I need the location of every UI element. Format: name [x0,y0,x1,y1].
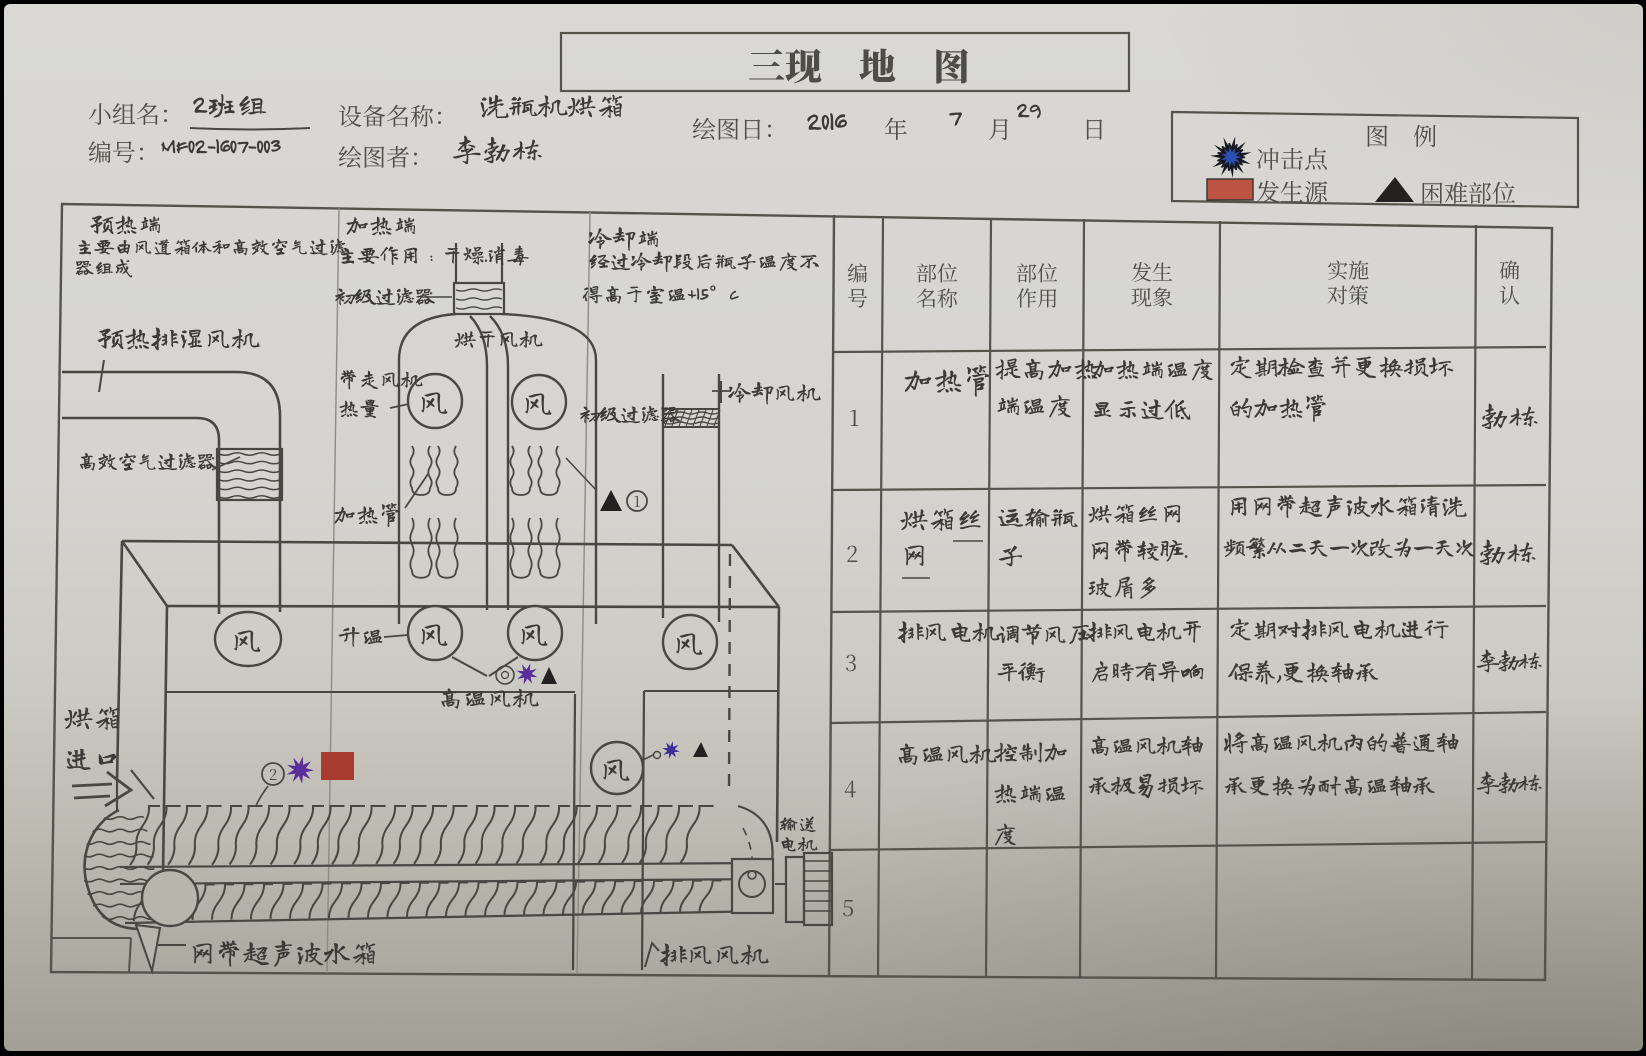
svg-text:1: 1 [633,491,640,512]
svg-text:2: 2 [269,764,277,785]
